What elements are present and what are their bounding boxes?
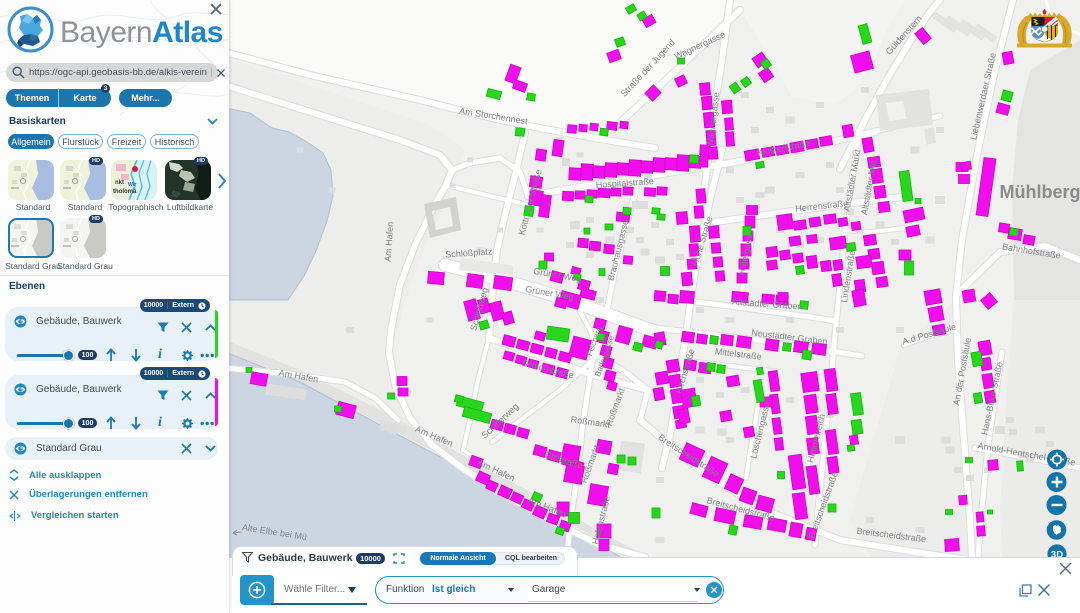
svg-text:Mühlberg: Mühlberg [1000, 182, 1080, 202]
svg-text:nkt: nkt [115, 180, 124, 186]
svg-text:tholomä: tholomä [113, 189, 137, 195]
svg-text:Wtr: Wtr [128, 182, 136, 188]
